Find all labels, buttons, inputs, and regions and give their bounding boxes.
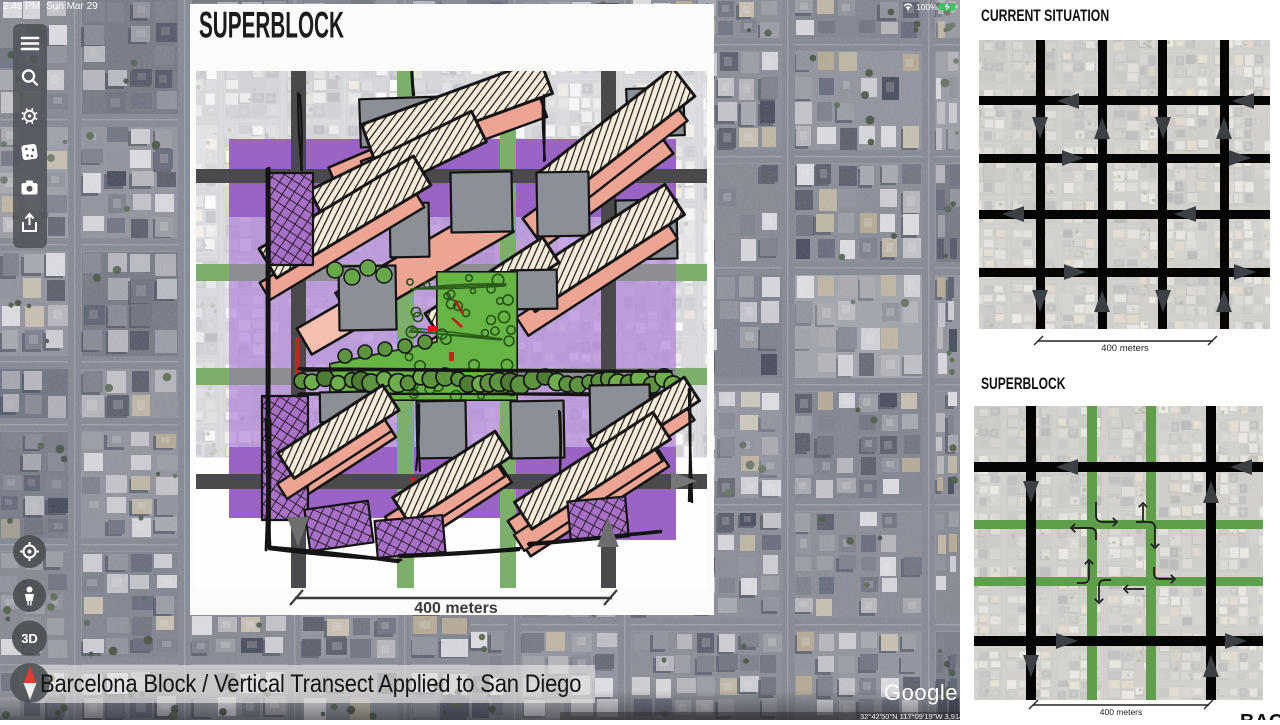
svg-text:100%: 100%: [916, 2, 938, 12]
svg-text:400 meters: 400 meters: [414, 600, 498, 617]
svg-text:Sun Mar 29: Sun Mar 29: [46, 1, 98, 12]
svg-text:32°42'50"N 117°09'19"W 3,914: 32°42'50"N 117°09'19"W 3,914 ft: [860, 712, 970, 720]
svg-text:SUPERBLOCK: SUPERBLOCK: [199, 5, 344, 46]
svg-text:2:48 PM: 2:48 PM: [3, 1, 40, 12]
svg-text:BACC: BACC: [1240, 711, 1280, 720]
svg-text:Google: Google: [884, 680, 958, 705]
svg-text:400 meters: 400 meters: [1100, 707, 1143, 717]
svg-text:CURRENT SITUATION: CURRENT SITUATION: [981, 7, 1109, 25]
svg-text:Barcelona Block / Vertical Tra: Barcelona Block / Vertical Transect Appl…: [40, 670, 581, 698]
svg-text:3D: 3D: [21, 631, 38, 646]
svg-text:SUPERBLOCK: SUPERBLOCK: [981, 375, 1066, 393]
svg-text:400 meters: 400 meters: [1101, 343, 1149, 354]
